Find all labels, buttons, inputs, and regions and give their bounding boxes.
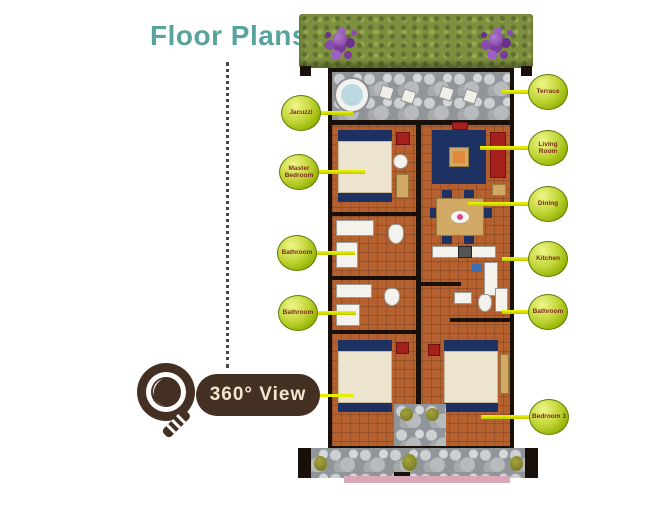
label-text: Kitchen xyxy=(536,255,560,262)
terrace-area xyxy=(332,72,510,120)
plant-pot xyxy=(396,342,409,354)
sofa xyxy=(490,132,506,178)
toilet xyxy=(384,288,400,306)
wall-post xyxy=(525,448,538,478)
bathtub xyxy=(336,304,360,326)
label-text: Dining xyxy=(538,200,558,207)
room-label-dining: Dining xyxy=(528,186,568,222)
dashed-connector-line xyxy=(226,62,229,368)
stove xyxy=(458,246,472,258)
toilet xyxy=(388,224,404,244)
label-text: Bathroom xyxy=(283,309,314,316)
room-label-bedroom-3: Bedroom 3 xyxy=(529,399,569,435)
room-label-terrace: Terrace xyxy=(528,74,568,110)
label-bubble: Bathroom xyxy=(528,294,568,330)
wall-post xyxy=(298,448,311,478)
view-360-label: 360° View xyxy=(210,384,307,406)
dining-chair xyxy=(442,236,452,244)
stepping-stone xyxy=(438,85,454,101)
rug-medallion xyxy=(453,151,465,163)
toilet xyxy=(478,294,492,312)
jacuzzi-water xyxy=(341,84,363,106)
page-title: Floor Plans xyxy=(150,20,308,52)
centerpiece xyxy=(457,214,463,220)
bedroom3-bench xyxy=(444,403,498,412)
table-setting xyxy=(450,210,470,224)
wall-post xyxy=(300,66,311,76)
bathroom-vanity xyxy=(336,284,372,298)
interior-wall xyxy=(332,212,416,216)
dining-chair xyxy=(442,190,452,198)
interior-wall xyxy=(421,282,461,286)
armchair xyxy=(396,132,410,145)
bathroom-vanity xyxy=(454,292,472,304)
label-text: Living Room xyxy=(529,141,567,155)
room-label-bathroom-2: Bathroom xyxy=(278,295,318,331)
label-text: Bathroom xyxy=(533,308,564,315)
master-bed xyxy=(338,141,392,193)
dining-chair xyxy=(464,236,474,244)
dining-chair xyxy=(464,190,474,198)
guest-bed-headboard xyxy=(338,340,392,351)
label-bubble: Bathroom xyxy=(278,295,318,331)
label-bubble: Master Bedroom xyxy=(279,154,319,190)
hedge-planter xyxy=(299,14,533,68)
magnifier-icon xyxy=(126,356,220,452)
label-text: Bedroom 3 xyxy=(532,413,566,420)
stepping-stone xyxy=(378,84,394,100)
closet xyxy=(500,354,509,394)
stepping-stone xyxy=(400,88,416,104)
view-360-button[interactable]: 360° View xyxy=(126,356,362,452)
button-connector-line xyxy=(320,394,354,397)
dividing-wall xyxy=(416,120,421,404)
walkway-edge xyxy=(344,476,510,483)
wardrobe xyxy=(396,174,409,198)
room-label-living-room: Living Room xyxy=(528,130,568,166)
interior-wall xyxy=(332,330,416,334)
room-label-master-bedroom: Master Bedroom xyxy=(279,154,319,190)
living-room-rug xyxy=(432,130,486,184)
label-bubble: Kitchen xyxy=(528,241,568,277)
console-table xyxy=(492,184,506,196)
label-bubble: Bathroom xyxy=(277,235,317,271)
plant-pot xyxy=(402,454,417,471)
shower xyxy=(495,288,508,312)
label-text: Master Bedroom xyxy=(280,165,318,179)
interior-wall xyxy=(332,120,510,125)
label-bubble: Bedroom 3 xyxy=(529,399,569,435)
bedroom3-bed xyxy=(444,351,498,403)
flower-cluster-icon xyxy=(333,32,347,46)
entry-path xyxy=(394,404,446,446)
plant-pot xyxy=(400,408,413,421)
stepping-stone xyxy=(462,88,478,104)
bedroom3-headboard xyxy=(444,340,498,351)
room-label-bathroom-right: Bathroom xyxy=(528,294,568,330)
bathroom-vanity xyxy=(336,220,374,236)
label-text: Terrace xyxy=(536,88,559,95)
label-text: Jacuzzi xyxy=(289,109,312,116)
master-bed-headboard xyxy=(338,130,392,141)
master-bed-bench xyxy=(338,193,392,202)
dining-chair xyxy=(484,208,492,218)
flower-cluster-icon xyxy=(489,32,503,46)
interior-wall xyxy=(332,276,416,280)
room-label-bathroom-1: Bathroom xyxy=(277,235,317,271)
room-label-kitchen: Kitchen xyxy=(528,241,568,277)
plant-pot xyxy=(452,122,468,130)
jacuzzi-tub xyxy=(334,77,370,113)
label-bubble: Dining xyxy=(528,186,568,222)
sink xyxy=(472,264,482,272)
room-label-jacuzzi: Jacuzzi xyxy=(281,95,321,131)
plant-pot xyxy=(510,456,523,471)
label-bubble: Jacuzzi xyxy=(281,95,321,131)
side-table xyxy=(393,154,408,169)
floor-plans-page: Floor Plans xyxy=(0,0,672,510)
front-walkway xyxy=(298,448,538,478)
interior-wall xyxy=(450,318,510,322)
plant-pot xyxy=(426,408,439,421)
shower xyxy=(336,242,358,268)
plant-pot xyxy=(428,344,440,356)
label-bubble: Terrace xyxy=(528,74,568,110)
label-bubble: Living Room xyxy=(528,130,568,166)
plant-pot xyxy=(314,456,327,471)
label-text: Bathroom xyxy=(282,249,313,256)
